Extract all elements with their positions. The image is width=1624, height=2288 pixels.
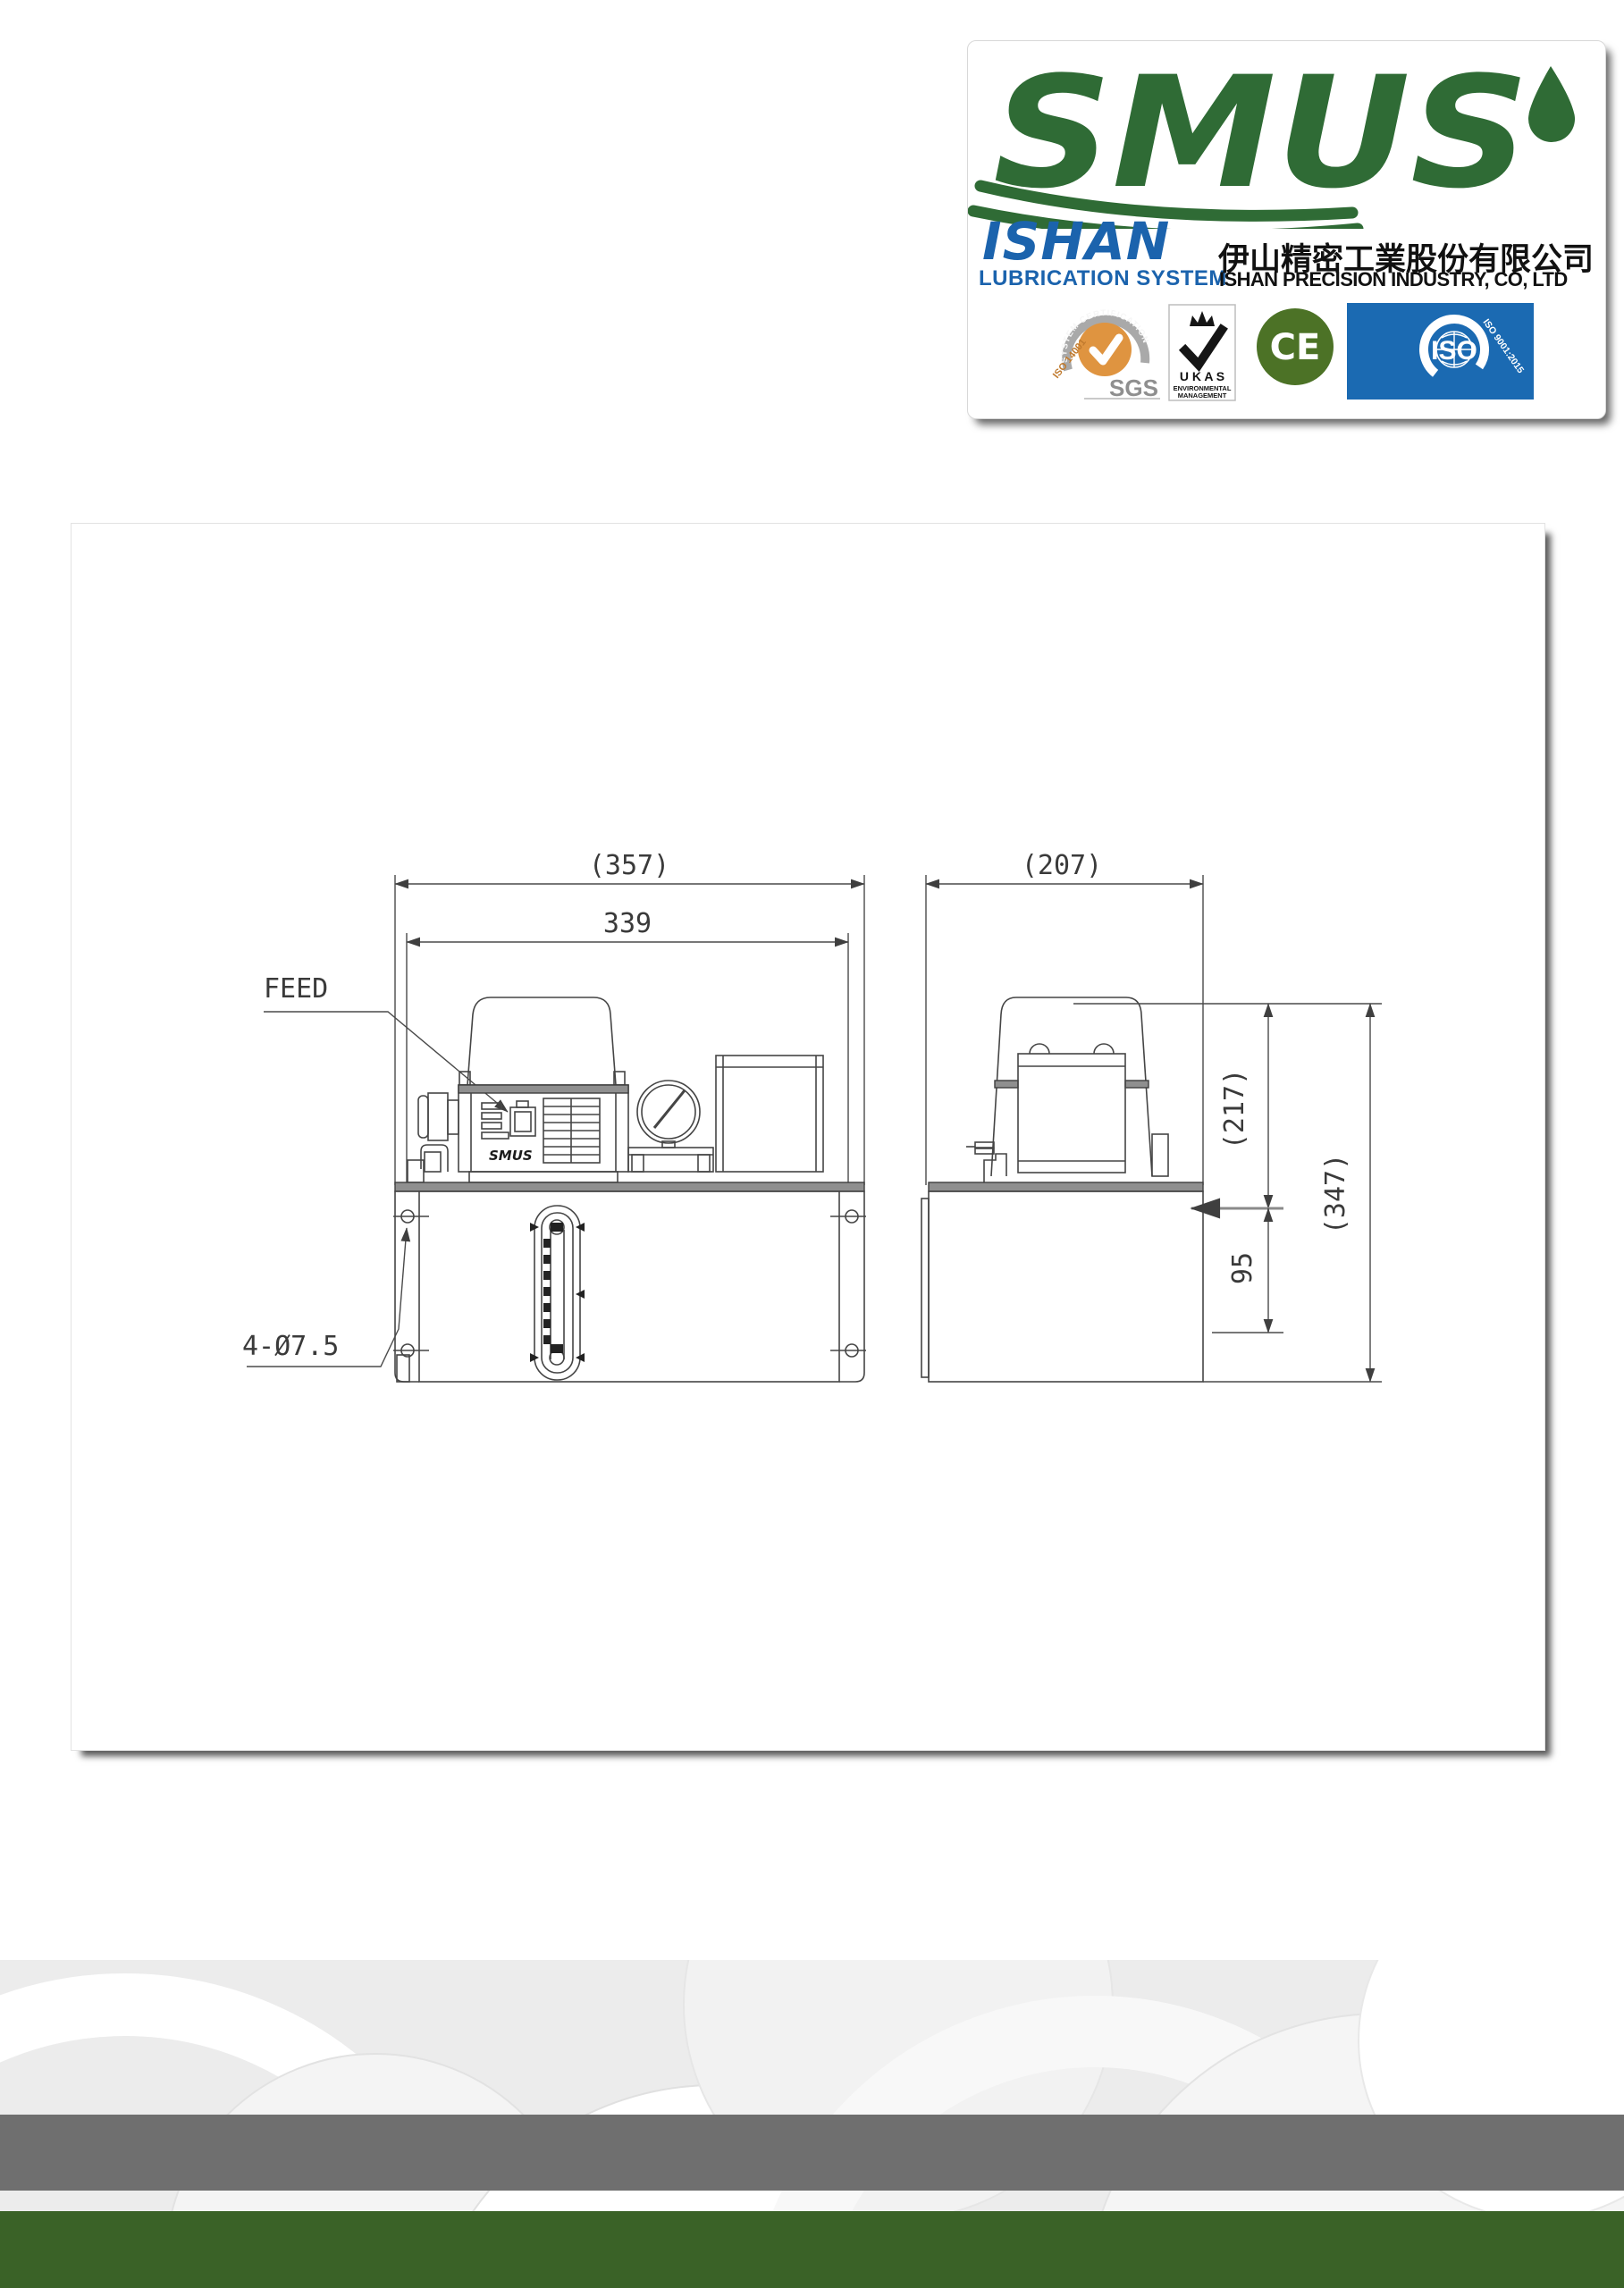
technical-drawing: (357) 339 FEED SMUS [72,524,1544,1750]
footer-gray-bar [0,2115,1624,2191]
oil-level-marks [530,1223,585,1362]
mount-wing-right [839,1191,864,1382]
company-name-en: ISHAN PRECISION INDUSTRY, CO, LTD [1219,268,1577,291]
ishan-logo-subtitle: LUBRICATION SYSTEM [979,266,1211,291]
badge-sgs: SYSTEM CERTIFICATION ISO 14001 SGS [1051,308,1160,401]
dim-217: (217) [1219,1069,1250,1149]
side-step [984,1154,1006,1182]
sgs-label: SGS [1109,374,1158,401]
cover-band [995,1081,1018,1088]
pump-body [428,1093,448,1140]
gauge-needle [654,1090,685,1128]
badge-ukas: U K A S ENVIRONMENTAL MANAGEMENT [1169,305,1235,400]
technical-drawing-panel: (357) 339 FEED SMUS [71,523,1545,1751]
smus-logo: SMUS [968,50,1605,229]
smus-wordmark: SMUS [993,50,1529,223]
feed-label: FEED [264,973,328,1005]
certification-badges: SYSTEM CERTIFICATION ISO 14001 SGS U K A… [968,300,1605,409]
foot-bracket [397,1355,409,1382]
terminal-box [716,1056,823,1172]
pipe-fitting [975,1142,994,1148]
dim-347: (347) [1320,1154,1351,1234]
pump-end-cap [418,1096,428,1138]
motor-cover [467,997,616,1085]
tank-top-plate [929,1182,1203,1191]
panel-top-bar [459,1085,628,1093]
footer-green-bar [0,2211,1624,2288]
base-plate [395,1182,864,1191]
brand-card: SMUS ISHAN LUBRICATION SYSTEM 伊山精密工業股份有限… [967,40,1606,419]
sgs-check-disc [1078,323,1132,376]
tank-side-plate [921,1199,929,1377]
ishan-logo: ISHAN [982,211,1206,272]
dim-339: 339 [603,908,652,939]
page: { "logo_card": { "brand": "SMUS", "ishan… [0,0,1624,2288]
ukas-line2: MANAGEMENT [1178,391,1227,400]
motor-body [1018,1054,1125,1173]
pipe-fitting [975,1148,994,1154]
gauge-base-block [632,1155,644,1172]
feed-port-inner [515,1112,531,1131]
gauge-base-block [698,1155,710,1172]
pump-foot [425,1152,441,1172]
rear-bracket [1152,1134,1168,1176]
holes-label: 4-Ø7.5 [242,1331,339,1362]
panel-indicator [482,1132,509,1139]
front-view: (357) 339 FEED SMUS [242,850,866,1382]
dim-357: (357) [589,850,669,881]
vent-grille-slots [543,1098,600,1163]
motor-lugs [1030,1044,1114,1054]
oil-tank [419,1191,839,1382]
panel-indicator [482,1123,501,1129]
side-view: (207) (217) 95 (347) [921,850,1382,1382]
ukas-label: U K A S [1180,369,1224,383]
panel-plinth [469,1172,618,1182]
mount-wing-left [395,1191,419,1382]
gauge-base [628,1148,713,1172]
ishan-row: ISHAN LUBRICATION SYSTEM 伊山精密工業股份有限公司 IS… [968,209,1605,299]
iso-label: ISO [1431,336,1477,366]
dim-95: 95 [1227,1252,1258,1284]
ce-label: CE [1270,327,1321,368]
oil-tank-side [929,1191,1203,1382]
pump-flange [448,1100,459,1134]
dim-207: (207) [1022,850,1102,881]
feed-port-tab [517,1101,528,1107]
badge-ce: CE [1257,308,1334,385]
oil-drop-icon [1528,66,1575,142]
panel-brand-label: SMUS [489,1148,533,1164]
cover-band [1125,1081,1149,1088]
panel-indicator [482,1113,501,1119]
badge-iso: ISO ISO 9001:2015 [1347,303,1534,400]
